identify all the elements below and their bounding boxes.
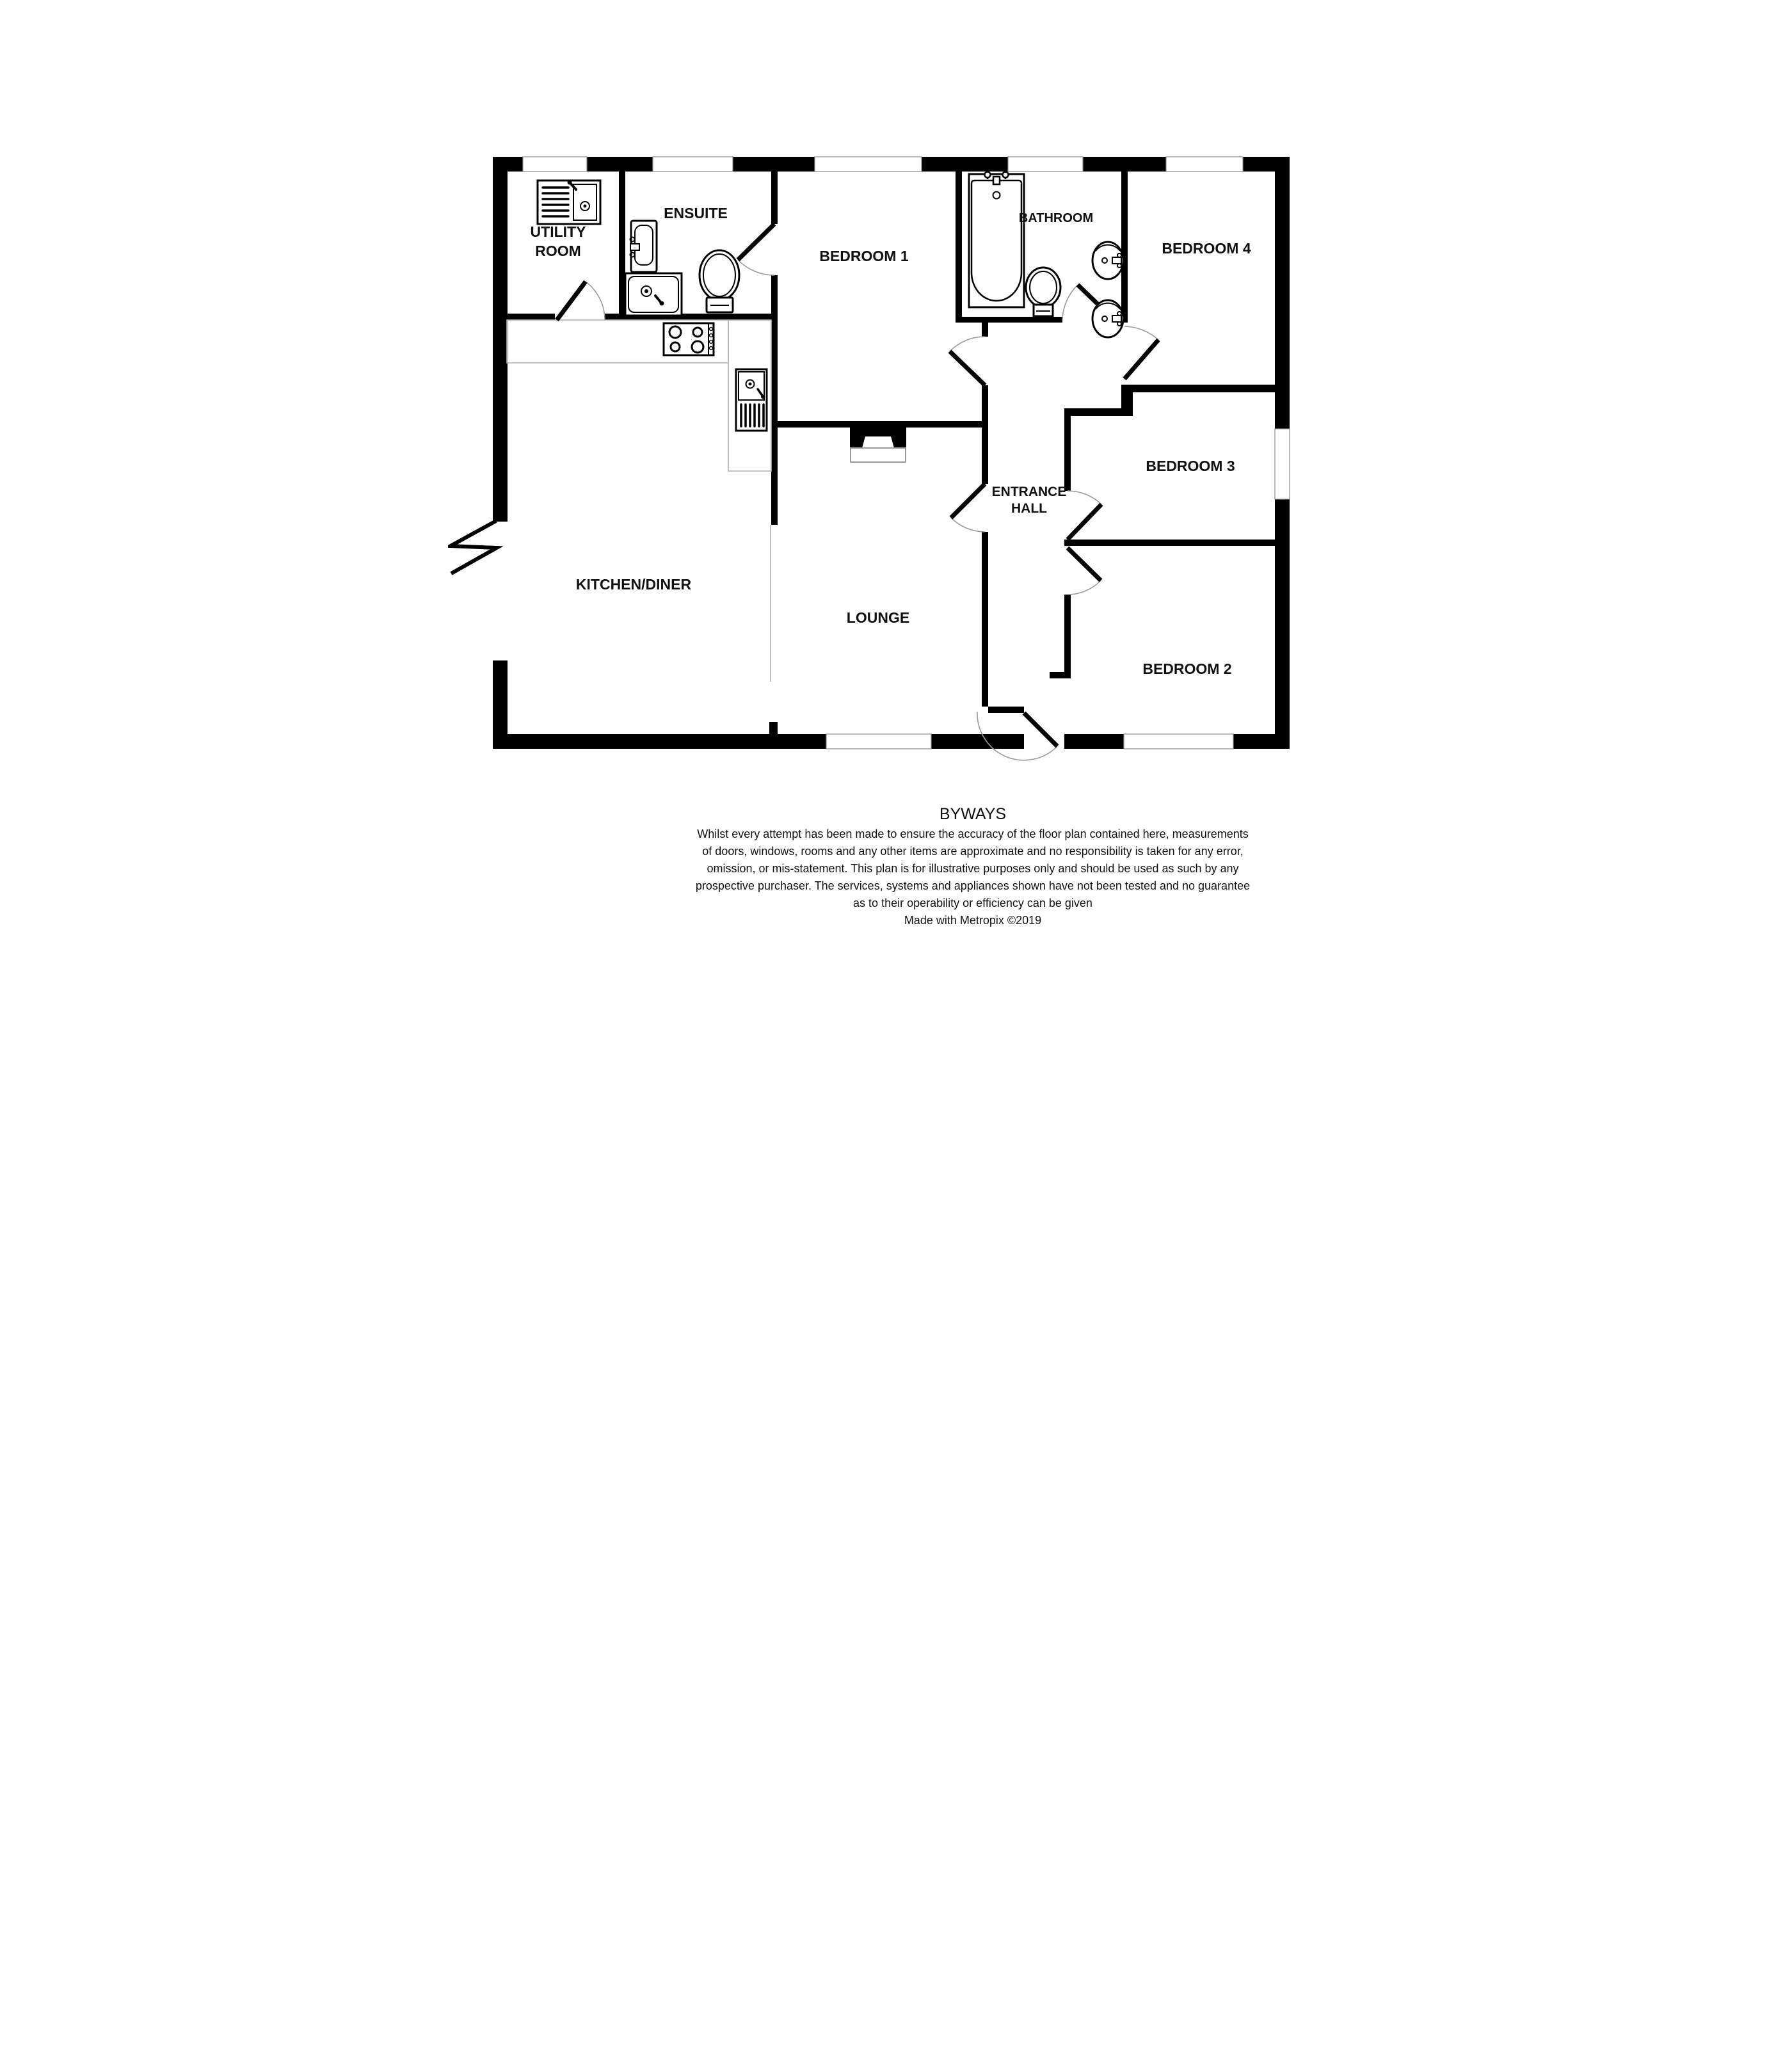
floor-plan: UTILITY ROOM ENSUITE BEDROOM 1 BATHROOM … bbox=[448, 0, 1344, 1024]
window-bedroom1 bbox=[815, 157, 922, 172]
wall-bedroom4-bottom bbox=[1125, 385, 1275, 392]
wall-exterior-left-lower bbox=[493, 660, 508, 749]
ensuite-toilet-icon bbox=[700, 250, 739, 312]
entrance-hall-label-line1: ENTRANCE bbox=[992, 484, 1067, 499]
wall-ensuite-bedroom1-upper bbox=[771, 172, 778, 224]
kitchen-counters bbox=[507, 320, 771, 682]
window-bathroom bbox=[1008, 157, 1083, 172]
wall-utility-bottom bbox=[507, 314, 555, 320]
kitchen-sink-icon bbox=[736, 369, 767, 431]
floor-plan-page: UTILITY ROOM ENSUITE BEDROOM 1 BATHROOM … bbox=[448, 0, 1344, 1024]
disclaimer-line-1: Whilst every attempt has been made to en… bbox=[697, 828, 1248, 840]
wall-bedroom4-left bbox=[1121, 172, 1128, 323]
wall-bathroom-bottom bbox=[956, 317, 1062, 323]
wall-break-icon bbox=[451, 521, 497, 573]
lounge-door bbox=[951, 484, 985, 518]
wall-bedroom2-left bbox=[1064, 595, 1071, 672]
chimney-breast-icon bbox=[850, 428, 906, 462]
utility-room-label-line1: UTILITY bbox=[531, 223, 586, 240]
disclaimer-line-4: prospective purchaser. The services, sys… bbox=[696, 879, 1250, 892]
front-door bbox=[1024, 713, 1057, 746]
wall-lounge-sw-stub bbox=[769, 722, 778, 734]
window-lounge bbox=[826, 734, 931, 749]
footer: BYWAYS Whilst every attempt has been mad… bbox=[696, 805, 1250, 927]
shower-tray-icon bbox=[625, 273, 682, 316]
kitchen-diner-label: KITCHEN/DINER bbox=[576, 576, 692, 593]
disclaimer-line-2: of doors, windows, rooms and any other i… bbox=[702, 845, 1243, 858]
bedroom2-door-arc bbox=[1068, 580, 1101, 595]
hob-icon bbox=[664, 323, 714, 355]
window-bedroom4 bbox=[1166, 157, 1243, 172]
wall-lounge-hall-lower bbox=[982, 532, 988, 707]
wall-exterior-bottom-left bbox=[493, 734, 1024, 749]
bedroom3-door-arc bbox=[1068, 491, 1101, 504]
bedroom4-door bbox=[1124, 340, 1158, 379]
entrance-hall-label-line2: HALL bbox=[1011, 501, 1047, 516]
property-name: BYWAYS bbox=[940, 805, 1006, 823]
wall-bedroom3-left bbox=[1064, 416, 1071, 491]
wall-exterior-left-upper bbox=[493, 157, 508, 522]
utility-room-label-line2: ROOM bbox=[535, 243, 581, 259]
bathroom-toilet-icon bbox=[1026, 268, 1060, 316]
wall-kitchen-divider bbox=[771, 275, 778, 525]
bedroom1-door bbox=[950, 351, 985, 385]
bedroom1-label: BEDROOM 1 bbox=[819, 248, 909, 264]
bedroom4-door-arc bbox=[1124, 326, 1158, 340]
bedroom3-door bbox=[1068, 504, 1101, 540]
wall-bedroom3-bottom bbox=[1064, 540, 1275, 546]
pedestal-basin-icon-2 bbox=[1092, 300, 1123, 337]
window-bedroom2 bbox=[1124, 734, 1233, 749]
bedroom2-label: BEDROOM 2 bbox=[1142, 660, 1231, 677]
pedestal-basin-icon bbox=[1092, 242, 1123, 279]
ensuite-door-arc bbox=[738, 260, 774, 275]
wall-bedroom1-right-stub-b bbox=[982, 385, 988, 421]
ensuite-label: ENSUITE bbox=[664, 205, 728, 221]
ensuite-basin-icon bbox=[630, 221, 657, 272]
window-utility bbox=[523, 157, 587, 172]
utility-door-arc bbox=[586, 282, 605, 320]
wall-bedroom3-top bbox=[1064, 408, 1133, 416]
wall-bedroom1-right-stub-a bbox=[982, 323, 988, 337]
window-ensuite bbox=[653, 157, 733, 172]
bedroom1-door-arc bbox=[950, 337, 985, 351]
bathroom-door-arc bbox=[1062, 285, 1078, 319]
bedroom4-label: BEDROOM 4 bbox=[1162, 240, 1251, 257]
credit-line: Made with Metropix ©2019 bbox=[904, 914, 1041, 927]
wall-porch bbox=[988, 707, 1024, 713]
utility-door bbox=[557, 282, 586, 320]
utility-sink-icon bbox=[538, 180, 600, 225]
wall-bedroom1-bottom bbox=[778, 421, 988, 428]
bathroom-label: BATHROOM bbox=[1019, 211, 1093, 225]
lounge-label: LOUNGE bbox=[847, 609, 909, 626]
disclaimer-line-3: omission, or mis-statement. This plan is… bbox=[707, 862, 1238, 875]
bedroom3-label: BEDROOM 3 bbox=[1146, 458, 1235, 474]
window-bedroom3 bbox=[1275, 429, 1290, 499]
disclaimer-line-5: as to their operability or efficiency ca… bbox=[853, 897, 1092, 909]
bathtub-icon bbox=[969, 172, 1024, 308]
bedroom2-door bbox=[1068, 548, 1101, 580]
ensuite-door bbox=[738, 224, 774, 260]
wall-bedroom2-return bbox=[1050, 672, 1071, 678]
lounge-door-arc bbox=[951, 518, 985, 532]
wall-bathroom-left bbox=[956, 172, 962, 317]
wall-lounge-hall-upper bbox=[982, 428, 988, 484]
